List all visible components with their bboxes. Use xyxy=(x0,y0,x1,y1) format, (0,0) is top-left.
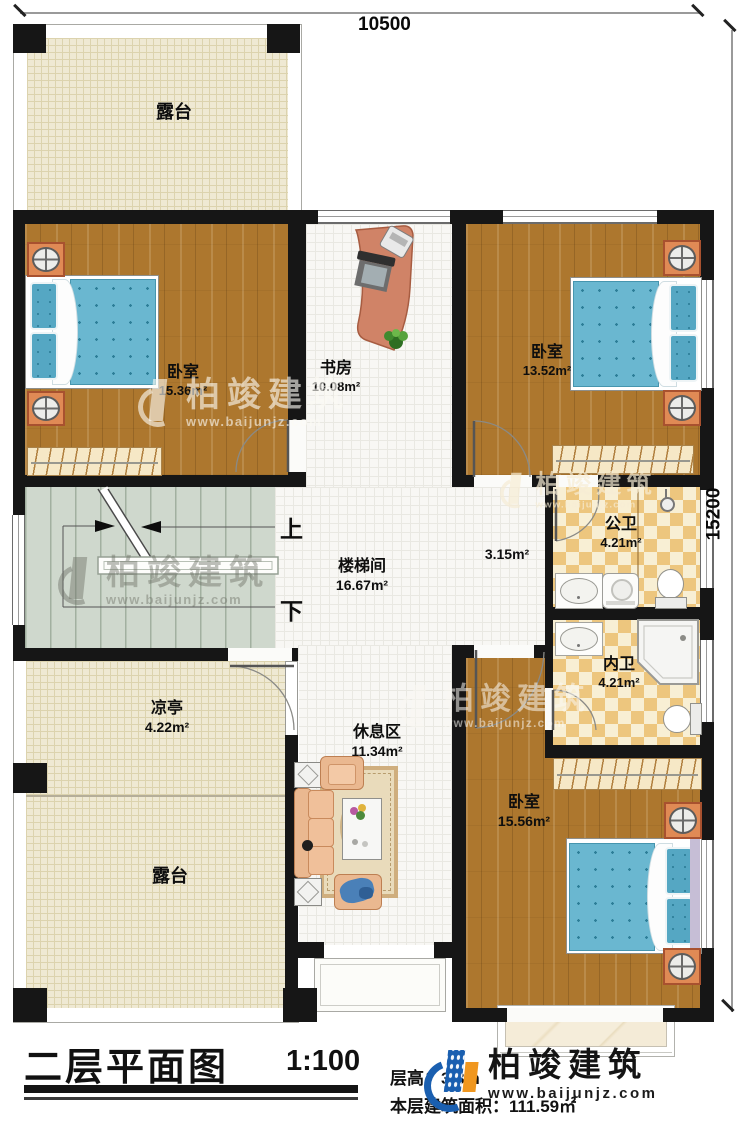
sofa-set xyxy=(294,756,404,908)
right-dimension-line xyxy=(731,30,733,1012)
pillow xyxy=(669,284,698,332)
room-label-study: 书房 10.08m² xyxy=(312,360,360,394)
brand-name: 柏竣建筑 xyxy=(488,1048,657,1081)
door-bedroom-tl xyxy=(234,418,290,474)
pillow xyxy=(30,282,58,330)
pillow xyxy=(669,334,698,382)
stair-hall-floor xyxy=(275,487,545,648)
bed-mattress xyxy=(569,843,655,951)
wall xyxy=(452,645,466,1022)
door-opening xyxy=(288,420,306,472)
room-label-rest-area: 休息区 11.34m² xyxy=(351,724,402,759)
room-label-terrace-top: 露台 xyxy=(156,102,192,123)
column xyxy=(13,988,47,1022)
bed xyxy=(570,277,702,391)
column xyxy=(283,988,317,1022)
window xyxy=(700,280,714,388)
stairs-up-label: 上 xyxy=(280,510,303,544)
side-table xyxy=(294,762,322,788)
nightstand xyxy=(664,802,702,839)
room-label-pavilion: 凉亭 4.22m² xyxy=(145,700,189,735)
brand-logo: 柏竣建筑 www.baijunjz.com xyxy=(424,1048,657,1108)
shower-enclosure xyxy=(636,618,702,688)
armchair xyxy=(320,756,364,790)
window xyxy=(318,210,450,224)
desk xyxy=(340,226,422,358)
bed xyxy=(566,838,702,954)
dimension-tick xyxy=(691,4,704,17)
side-table xyxy=(294,878,322,906)
nightstand xyxy=(27,242,65,277)
column xyxy=(267,24,300,53)
column xyxy=(13,24,46,53)
pavilion-divider-line xyxy=(26,795,287,797)
dimension-tick xyxy=(723,19,736,32)
pillow xyxy=(665,897,693,945)
wardrobe xyxy=(552,445,694,474)
room-label-bedroom-tl: 卧室 15.36m² xyxy=(159,364,207,398)
door-pavilion xyxy=(228,660,296,732)
window xyxy=(12,515,25,625)
nightstand xyxy=(27,391,65,426)
right-dimension-value: 15200 xyxy=(703,488,725,541)
floor-plan-canvas: 10500 15200 xyxy=(0,0,750,1125)
wall xyxy=(298,942,324,958)
bed xyxy=(25,275,159,389)
pillow xyxy=(30,332,58,380)
wardrobe xyxy=(553,758,702,790)
door-opening xyxy=(556,475,598,487)
room-label-bedroom-br: 卧室 15.56m² xyxy=(498,794,550,829)
shower-head-icon xyxy=(660,497,675,512)
bathroom-sink xyxy=(555,622,603,656)
window xyxy=(700,840,714,948)
dimension-tick xyxy=(13,4,26,17)
door-public-bath xyxy=(554,487,602,543)
title-underline-thin xyxy=(24,1097,358,1100)
armchair xyxy=(334,874,382,910)
room-label-bedroom-tr: 卧室 13.52m² xyxy=(523,344,571,378)
toilet xyxy=(655,569,685,609)
nightstand xyxy=(663,390,701,426)
door-bedroom-tr xyxy=(472,419,534,479)
room-label-corridor: 3.15m² xyxy=(485,546,529,563)
bed-mattress xyxy=(573,281,659,387)
bed-headboard xyxy=(690,839,700,953)
room-label-stair-hall: 楼梯间 16.67m² xyxy=(336,558,388,593)
wall xyxy=(452,210,466,487)
nightstand xyxy=(663,948,701,985)
washing-machine xyxy=(602,573,639,609)
room-label-terrace-bottom: 露台 xyxy=(152,866,188,887)
wall xyxy=(545,745,714,758)
sofa-cushion xyxy=(308,790,334,819)
plan-scale: 1:100 xyxy=(286,1045,360,1078)
room-label-public-bath: 公卫 4.21m² xyxy=(600,516,641,550)
bay-window-opening xyxy=(507,1008,663,1022)
column xyxy=(13,763,47,793)
title-underline xyxy=(24,1085,358,1093)
nightstand xyxy=(663,240,701,276)
window xyxy=(503,210,657,224)
staircase-graphics xyxy=(25,487,275,648)
wardrobe xyxy=(27,447,162,476)
dimension-tick xyxy=(721,999,734,1012)
terrace-top-floor xyxy=(27,38,288,213)
toilet xyxy=(663,703,703,733)
sofa-cushion xyxy=(308,846,334,875)
room-label-private-bath: 内卫 4.21m² xyxy=(598,656,639,690)
door-bedroom-br xyxy=(474,650,546,730)
coffee-table xyxy=(342,798,382,860)
bathroom-sink xyxy=(555,573,603,609)
sofa-pillow-dark xyxy=(302,840,313,851)
porch-step xyxy=(314,958,446,1012)
top-dimension-value: 10500 xyxy=(358,14,411,36)
brand-url: www.baijunjz.com xyxy=(488,1085,657,1102)
bed-mattress xyxy=(70,279,156,385)
wall xyxy=(13,475,306,487)
pillow xyxy=(665,847,693,895)
door-private-bath xyxy=(551,688,599,734)
page-title: 二层平面图 xyxy=(24,1036,229,1091)
brand-logo-icon xyxy=(424,1048,482,1108)
stairs-down-label: 下 xyxy=(280,592,303,626)
